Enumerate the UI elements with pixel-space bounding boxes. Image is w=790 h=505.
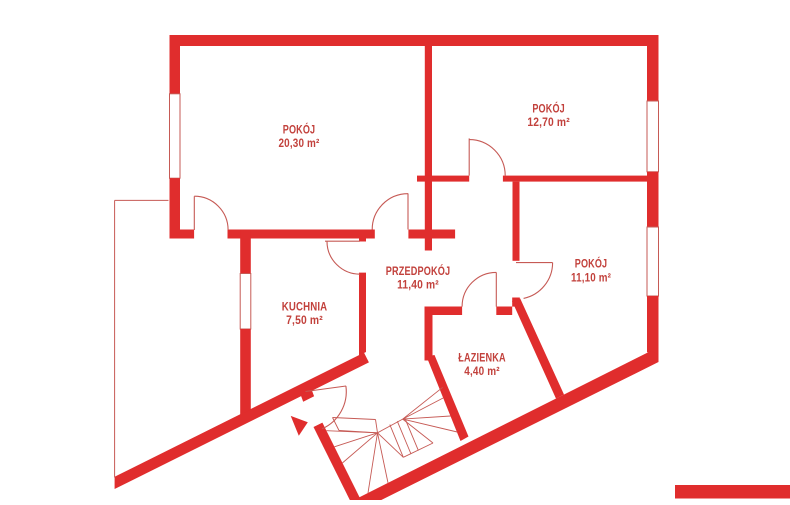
svg-text:ŁAZIENKA: ŁAZIENKA: [458, 350, 505, 364]
svg-text:KUCHNIA: KUCHNIA: [282, 299, 328, 313]
svg-text:20,30 m²: 20,30 m²: [279, 136, 320, 150]
svg-text:POKÓJ: POKÓJ: [575, 256, 608, 271]
svg-text:7,50 m²: 7,50 m²: [286, 313, 323, 327]
svg-text:POKÓJ: POKÓJ: [532, 100, 565, 115]
svg-text:POKÓJ: POKÓJ: [283, 122, 316, 137]
svg-text:11,10 m²: 11,10 m²: [571, 271, 611, 285]
svg-text:4,40 m²: 4,40 m²: [464, 364, 500, 378]
svg-text:12,70 m²: 12,70 m²: [527, 115, 570, 129]
svg-text:11,40 m²: 11,40 m²: [397, 278, 439, 292]
svg-text:PRZEDPOKÓJ: PRZEDPOKÓJ: [386, 263, 451, 278]
